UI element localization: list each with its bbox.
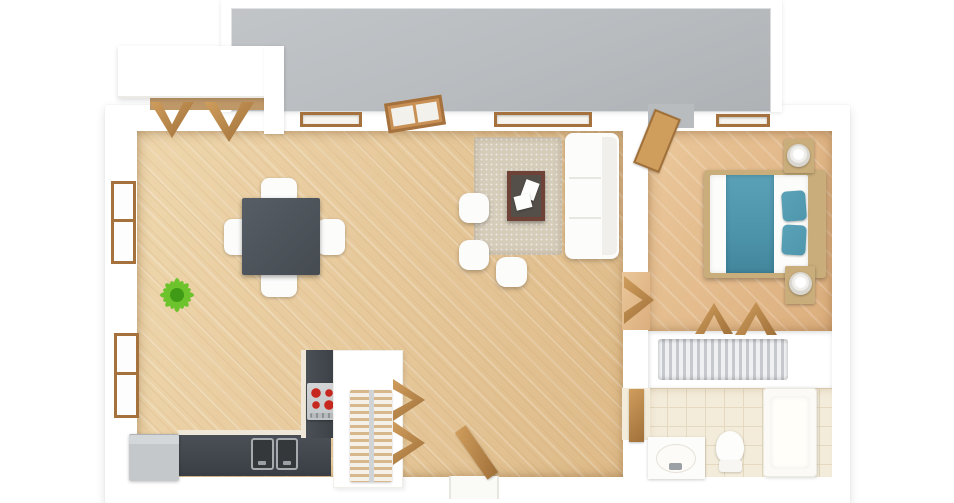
bed-pillow (781, 224, 807, 255)
bed-pillow (781, 190, 807, 222)
sofa-backrest (602, 137, 617, 255)
sofa-cushion-seam (569, 177, 601, 179)
living-window-top-right (494, 112, 592, 127)
vanity-faucet (669, 463, 682, 470)
toilet-tank (719, 460, 742, 472)
living-window-top-left (300, 112, 362, 127)
bathroom-door (629, 389, 644, 442)
bedroom-window-top (716, 114, 770, 127)
ottoman-pouf (459, 193, 489, 223)
pantry-shelving-unit (350, 390, 392, 482)
living-window-left-upper (111, 181, 136, 264)
entry-closet-cabinet (118, 46, 282, 98)
balcony-floor (231, 8, 771, 112)
three-seat-sofa (565, 133, 619, 259)
sink-basin-left (251, 438, 274, 470)
table-lamp (787, 144, 810, 167)
magazine (514, 193, 533, 210)
sink-basin-right (276, 438, 299, 470)
bathtub (763, 388, 817, 477)
table-lamp (789, 272, 812, 295)
ottoman-pouf (459, 240, 489, 270)
entry-closet-side-wall (264, 46, 284, 134)
bed-teal-runner (726, 175, 774, 273)
door-glass-pane (391, 105, 415, 126)
ottoman-pouf (496, 257, 527, 287)
dining-chair-right (317, 219, 345, 255)
living-window-left-lower (114, 333, 139, 418)
coffee-table (507, 171, 545, 221)
dining-table (242, 198, 320, 275)
potted-plant (146, 263, 208, 327)
refrigerator (129, 434, 179, 481)
entry-door-threshold (449, 476, 499, 499)
kitchen-double-sink (251, 438, 298, 470)
door-glass-pane (415, 102, 439, 123)
sofa-cushion-seam (569, 217, 601, 219)
hanging-clothes-rail (658, 339, 788, 380)
bathtub-basin (770, 396, 810, 469)
floor-plan-scene (0, 0, 954, 503)
